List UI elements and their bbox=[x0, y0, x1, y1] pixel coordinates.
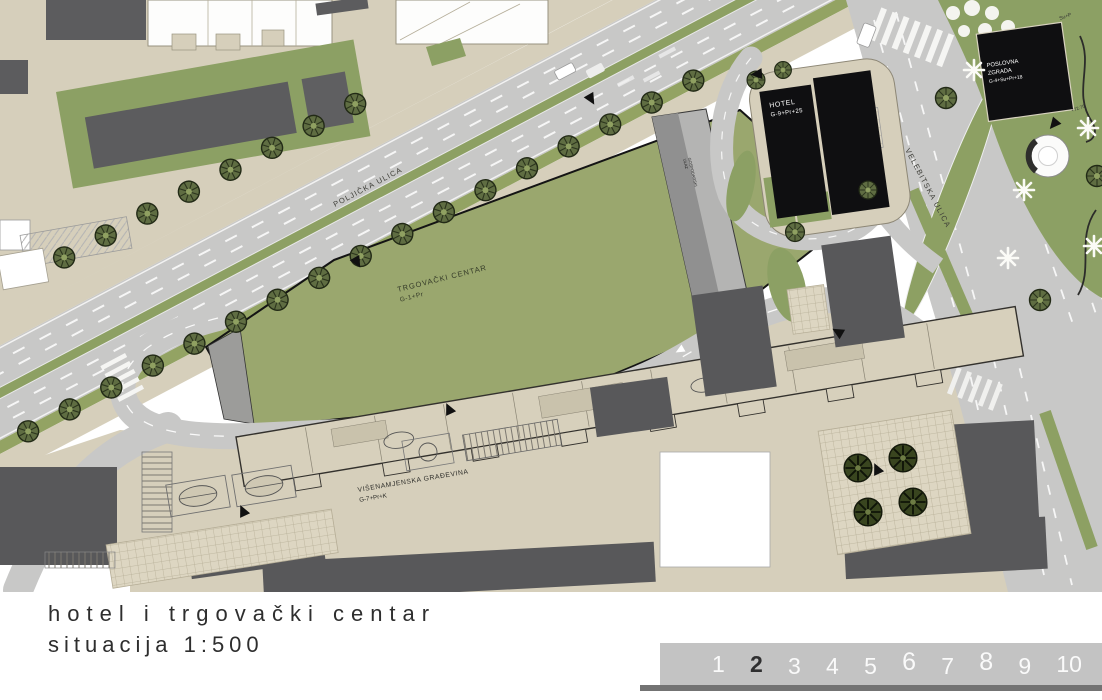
slide-title-line2: situacija 1:500 bbox=[48, 630, 436, 660]
hotel-parcel bbox=[746, 55, 914, 240]
stairs bbox=[142, 452, 172, 532]
courtyard-plaza bbox=[818, 410, 971, 555]
palm-tree-icon bbox=[964, 60, 984, 80]
pagination-bar: 1 2 3 4 5 6 7 8 9 10 bbox=[660, 643, 1102, 685]
tree-canopy bbox=[946, 6, 960, 20]
site-plan-map: TRGOVAČKI CENTAR G-1+Pr POLJIČKA ULICA V… bbox=[0, 0, 1102, 592]
pagination-bar-shadow bbox=[640, 685, 1102, 691]
page-button-10[interactable]: 10 bbox=[1056, 643, 1082, 685]
page-button-2[interactable]: 2 bbox=[750, 643, 763, 685]
page-button-8[interactable]: 8 bbox=[979, 641, 993, 683]
courtyard-tree bbox=[844, 454, 872, 482]
page-button-3[interactable]: 3 bbox=[788, 645, 801, 687]
slide: TRGOVAČKI CENTAR G-1+Pr POLJIČKA ULICA V… bbox=[0, 0, 1102, 700]
page-button-9[interactable]: 9 bbox=[1018, 645, 1031, 687]
page-button-6[interactable]: 6 bbox=[902, 641, 916, 683]
page-button-7[interactable]: 7 bbox=[941, 645, 954, 687]
slide-title-line1: hotel i trgovački centar bbox=[48, 598, 436, 630]
dark-building bbox=[46, 0, 146, 40]
page-button-5[interactable]: 5 bbox=[864, 645, 877, 687]
white-building bbox=[660, 452, 770, 567]
page-button-1[interactable]: 1 bbox=[712, 643, 725, 685]
slide-title: hotel i trgovački centar situacija 1:500 bbox=[48, 598, 436, 660]
page-button-4[interactable]: 4 bbox=[826, 645, 839, 687]
outlined-building bbox=[396, 0, 548, 44]
